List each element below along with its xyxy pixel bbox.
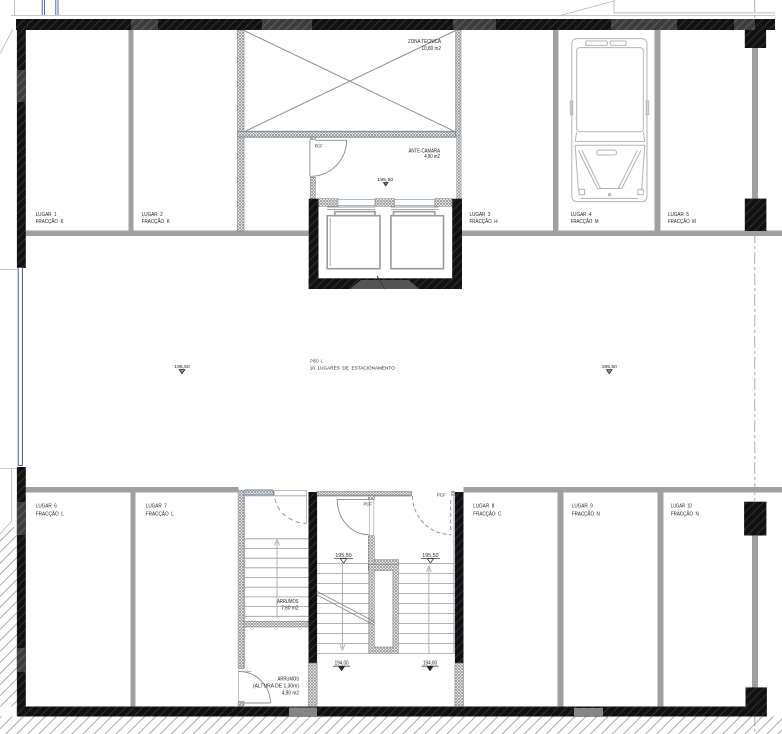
- svg-text:ARRUMOS: ARRUMOS: [278, 677, 300, 683]
- svg-text:FRACÇÃO M: FRACÇÃO M: [571, 218, 599, 225]
- svg-text:PCF: PCF: [315, 143, 323, 148]
- svg-text:LUGAR 6: LUGAR 6: [36, 503, 57, 509]
- svg-text:LUGAR 9: LUGAR 9: [572, 503, 593, 509]
- svg-text:194,00: 194,00: [423, 661, 437, 667]
- svg-text:LUGAR 5: LUGAR 5: [668, 212, 689, 218]
- svg-text:10 LUGARES DE ESTACIONAMENT: 10 LUGARES DE ESTACIONAMENTO: [310, 365, 395, 370]
- svg-text:195,50: 195,50: [335, 553, 352, 559]
- svg-text:LUGAR 7: LUGAR 7: [146, 503, 167, 509]
- svg-text:4,90 m2: 4,90 m2: [282, 690, 299, 696]
- svg-text:194,00: 194,00: [335, 661, 349, 667]
- svg-text:FRACÇÃO N: FRACÇÃO N: [671, 511, 699, 518]
- svg-text:LUGAR 8: LUGAR 8: [473, 503, 494, 509]
- svg-text:195,50: 195,50: [422, 553, 439, 559]
- svg-text:4,90 m2: 4,90 m2: [424, 154, 440, 160]
- svg-text:FRACÇÃO H: FRACÇÃO H: [470, 218, 498, 225]
- svg-text:LUGAR 3: LUGAR 3: [470, 212, 491, 218]
- svg-text:FRACÇÃO L: FRACÇÃO L: [146, 511, 174, 518]
- svg-text:195,50: 195,50: [602, 364, 618, 369]
- svg-text:ZONA TÉCNICA: ZONA TÉCNICA: [408, 38, 441, 45]
- svg-text:10,80 m2: 10,80 m2: [422, 46, 442, 52]
- svg-text:FRACÇÃO M: FRACÇÃO M: [668, 218, 696, 225]
- svg-text:FRACÇÃO K: FRACÇÃO K: [36, 218, 64, 225]
- svg-text:195,50: 195,50: [174, 364, 190, 369]
- svg-text:PISO -1: PISO -1: [310, 358, 323, 363]
- svg-text:LUGAR 1: LUGAR 1: [36, 212, 57, 218]
- svg-text:LUGAR 2: LUGAR 2: [142, 212, 163, 218]
- svg-text:PCF: PCF: [364, 501, 373, 506]
- svg-text:195,50: 195,50: [377, 177, 393, 182]
- svg-text:LUGAR 10: LUGAR 10: [671, 503, 692, 509]
- svg-text:FRACÇÃO K: FRACÇÃO K: [142, 218, 170, 225]
- svg-text:FRACÇÃO N: FRACÇÃO N: [572, 511, 600, 518]
- svg-text:ARRUMOS: ARRUMOS: [277, 599, 299, 605]
- svg-text:FRACÇÃO C: FRACÇÃO C: [473, 511, 501, 518]
- svg-text:7,60 m2: 7,60 m2: [281, 605, 298, 611]
- svg-text:PCF: PCF: [437, 493, 446, 498]
- svg-text:(ALTURA DE 1,30m): (ALTURA DE 1,30m): [253, 684, 299, 690]
- svg-text:FRACÇÃO L: FRACÇÃO L: [36, 511, 64, 518]
- svg-text:LUGAR 4: LUGAR 4: [571, 212, 592, 218]
